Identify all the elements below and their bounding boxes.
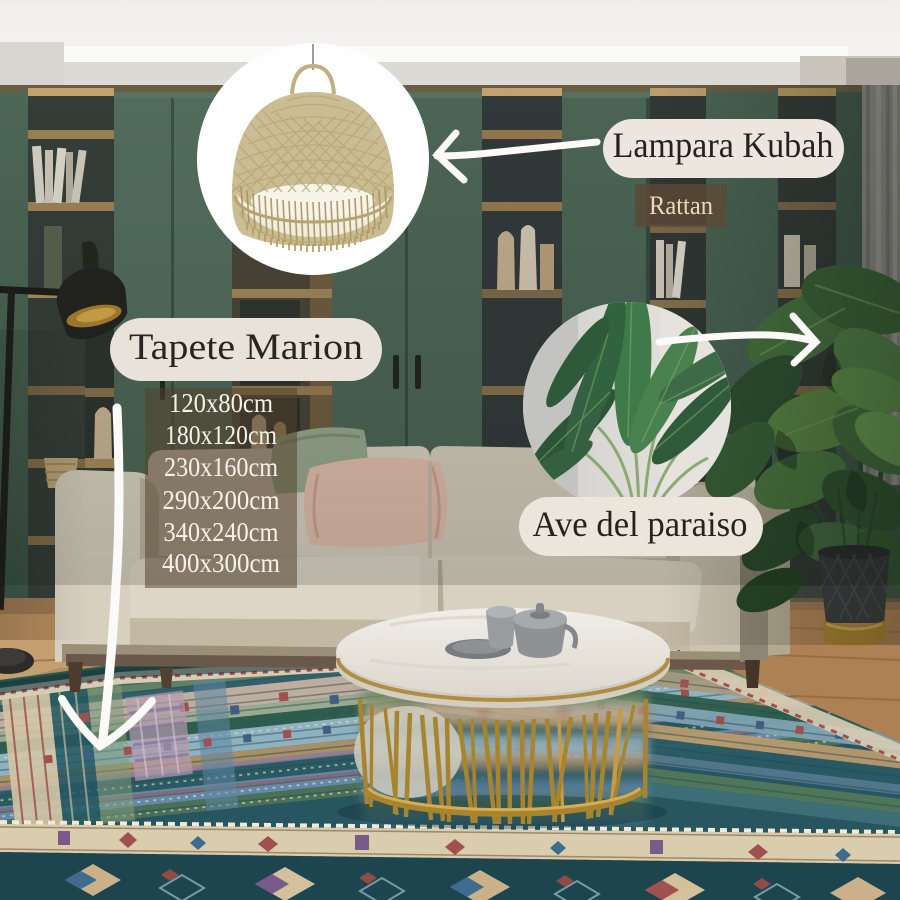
svg-text:340x240cm: 340x240cm <box>164 517 279 547</box>
svg-text:180x120cm: 180x120cm <box>165 420 277 450</box>
svg-text:Tapete Marion: Tapete Marion <box>129 327 363 368</box>
svg-text:230x160cm: 230x160cm <box>164 452 278 482</box>
svg-text:Rattan: Rattan <box>649 191 713 220</box>
svg-text:Ave del paraiso: Ave del paraiso <box>533 504 748 544</box>
svg-text:Lampara Kubah: Lampara Kubah <box>613 125 834 165</box>
svg-text:120x80cm: 120x80cm <box>169 388 273 418</box>
svg-text:290x200cm: 290x200cm <box>163 485 280 515</box>
svg-text:400x300cm: 400x300cm <box>162 548 280 578</box>
